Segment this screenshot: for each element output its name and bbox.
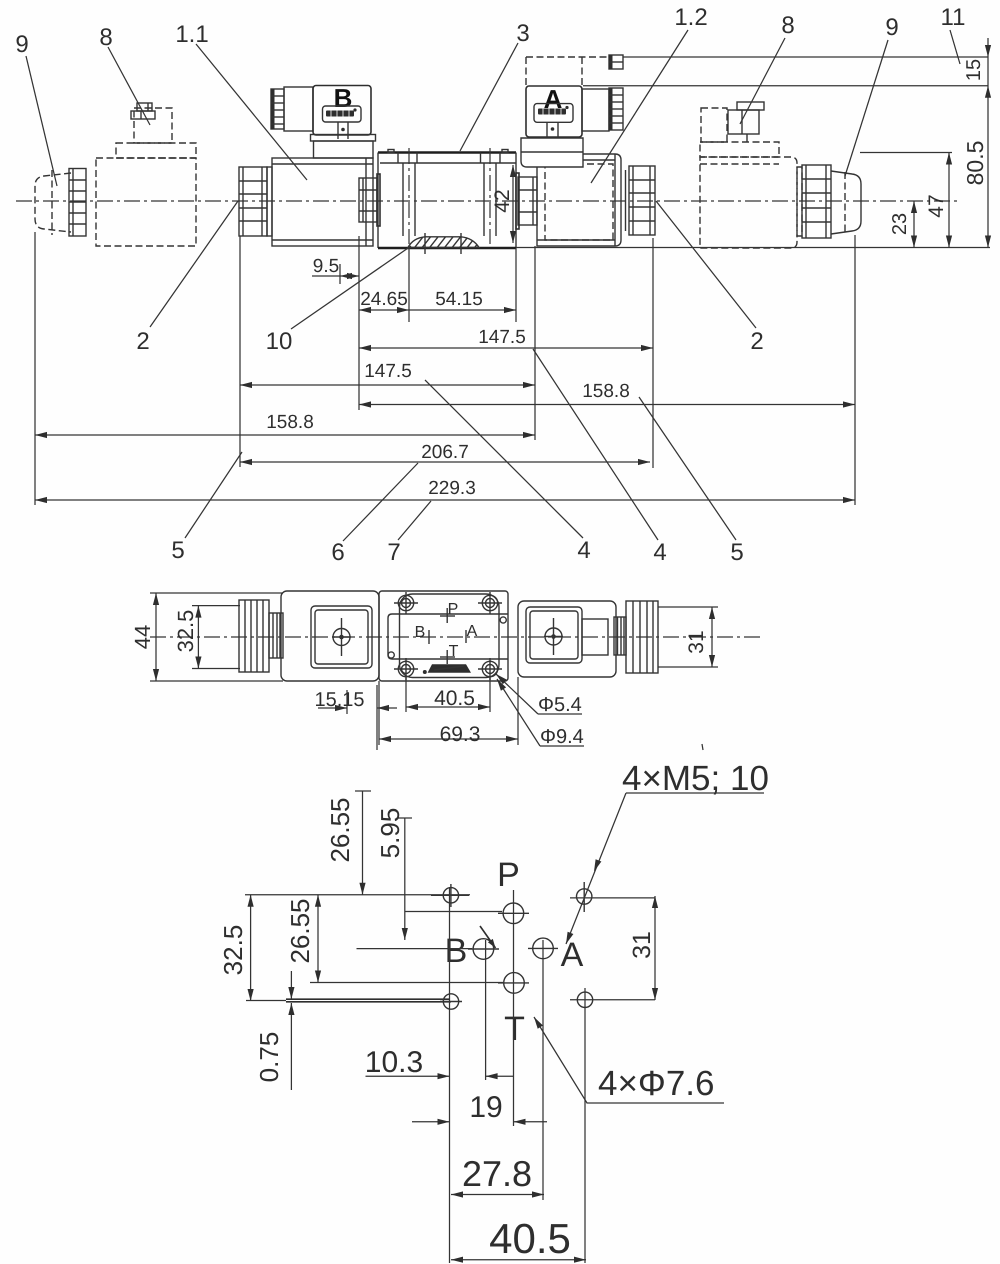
svg-text:4: 4 xyxy=(577,537,590,564)
svg-text:147.5: 147.5 xyxy=(478,327,526,348)
svg-text:147.5: 147.5 xyxy=(364,361,412,382)
svg-text:158.8: 158.8 xyxy=(266,412,314,433)
svg-text:1.1: 1.1 xyxy=(175,21,208,48)
svg-text:5: 5 xyxy=(171,537,184,564)
svg-text:4×M5; 10: 4×M5; 10 xyxy=(622,759,769,798)
svg-text:5.95: 5.95 xyxy=(375,808,405,859)
svg-text:8: 8 xyxy=(99,24,112,51)
svg-text:6: 6 xyxy=(331,539,344,566)
svg-text:31: 31 xyxy=(628,931,656,959)
svg-text:26.55: 26.55 xyxy=(325,797,355,862)
svg-text:9: 9 xyxy=(15,31,28,58)
svg-text:P: P xyxy=(497,856,520,894)
svg-text:A: A xyxy=(467,623,478,640)
svg-text:A: A xyxy=(561,936,584,974)
svg-text:54.15: 54.15 xyxy=(435,289,483,310)
svg-text:32.5: 32.5 xyxy=(218,925,248,976)
svg-text:19: 19 xyxy=(469,1091,502,1124)
svg-text:26.55: 26.55 xyxy=(285,898,315,963)
svg-text:40.5: 40.5 xyxy=(434,687,475,710)
svg-text:10.3: 10.3 xyxy=(365,1046,423,1079)
svg-text:10: 10 xyxy=(266,328,293,355)
svg-text:206.7: 206.7 xyxy=(421,442,469,463)
svg-text:32.5: 32.5 xyxy=(173,610,198,653)
svg-text:158.8: 158.8 xyxy=(582,381,630,402)
svg-text:4×Φ7.6: 4×Φ7.6 xyxy=(598,1064,714,1103)
svg-text:69.3: 69.3 xyxy=(440,723,481,746)
svg-text:44: 44 xyxy=(130,625,155,649)
svg-text:B: B xyxy=(334,83,353,113)
svg-text:27.8: 27.8 xyxy=(462,1153,532,1194)
svg-text:3: 3 xyxy=(516,20,529,47)
svg-text:9.5: 9.5 xyxy=(313,256,339,277)
svg-text:31: 31 xyxy=(685,630,708,653)
svg-text:4: 4 xyxy=(653,539,666,566)
svg-text:229.3: 229.3 xyxy=(428,478,476,499)
svg-text:42: 42 xyxy=(491,189,514,212)
svg-text:2: 2 xyxy=(136,328,149,355)
svg-text:Φ9.4: Φ9.4 xyxy=(540,726,584,748)
svg-text:1.2: 1.2 xyxy=(674,4,707,31)
svg-text:15: 15 xyxy=(963,59,985,81)
svg-text:2: 2 xyxy=(750,328,763,355)
svg-text:B: B xyxy=(415,624,426,641)
svg-text:11: 11 xyxy=(941,4,966,31)
svg-text:B: B xyxy=(445,932,468,970)
svg-text:5: 5 xyxy=(730,539,743,566)
svg-text:9: 9 xyxy=(885,14,898,41)
svg-text:47: 47 xyxy=(925,194,948,217)
svg-text:7: 7 xyxy=(387,539,400,566)
svg-text:0.75: 0.75 xyxy=(254,1032,284,1083)
svg-text:Φ5.4: Φ5.4 xyxy=(538,694,582,716)
svg-text:24.65: 24.65 xyxy=(360,289,408,310)
svg-text:40.5: 40.5 xyxy=(489,1215,571,1262)
svg-text:80.5: 80.5 xyxy=(962,141,988,186)
svg-text:8: 8 xyxy=(781,12,794,39)
svg-text:23: 23 xyxy=(889,213,911,235)
svg-text:T: T xyxy=(504,1010,525,1048)
